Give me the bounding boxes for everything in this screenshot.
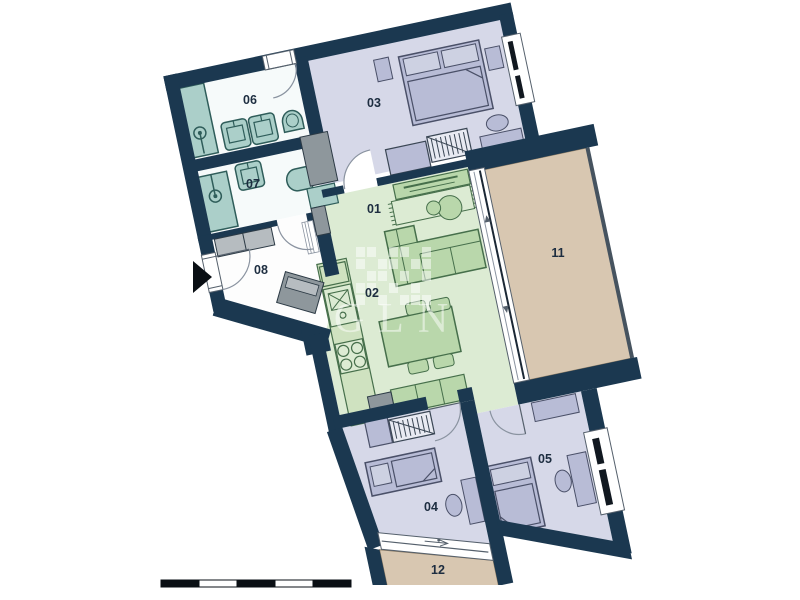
svg-text:05: 05 bbox=[538, 452, 552, 466]
svg-text:01: 01 bbox=[367, 202, 381, 216]
svg-text:11: 11 bbox=[551, 246, 564, 260]
svg-text:07: 07 bbox=[246, 177, 260, 191]
svg-text:08: 08 bbox=[254, 263, 268, 277]
svg-text:12: 12 bbox=[431, 563, 445, 577]
svg-text:02: 02 bbox=[365, 286, 379, 300]
svg-text:GLN: GLN bbox=[334, 296, 462, 342]
svg-text:06: 06 bbox=[243, 93, 257, 107]
svg-text:03: 03 bbox=[367, 96, 381, 110]
svg-text:04: 04 bbox=[424, 500, 438, 514]
